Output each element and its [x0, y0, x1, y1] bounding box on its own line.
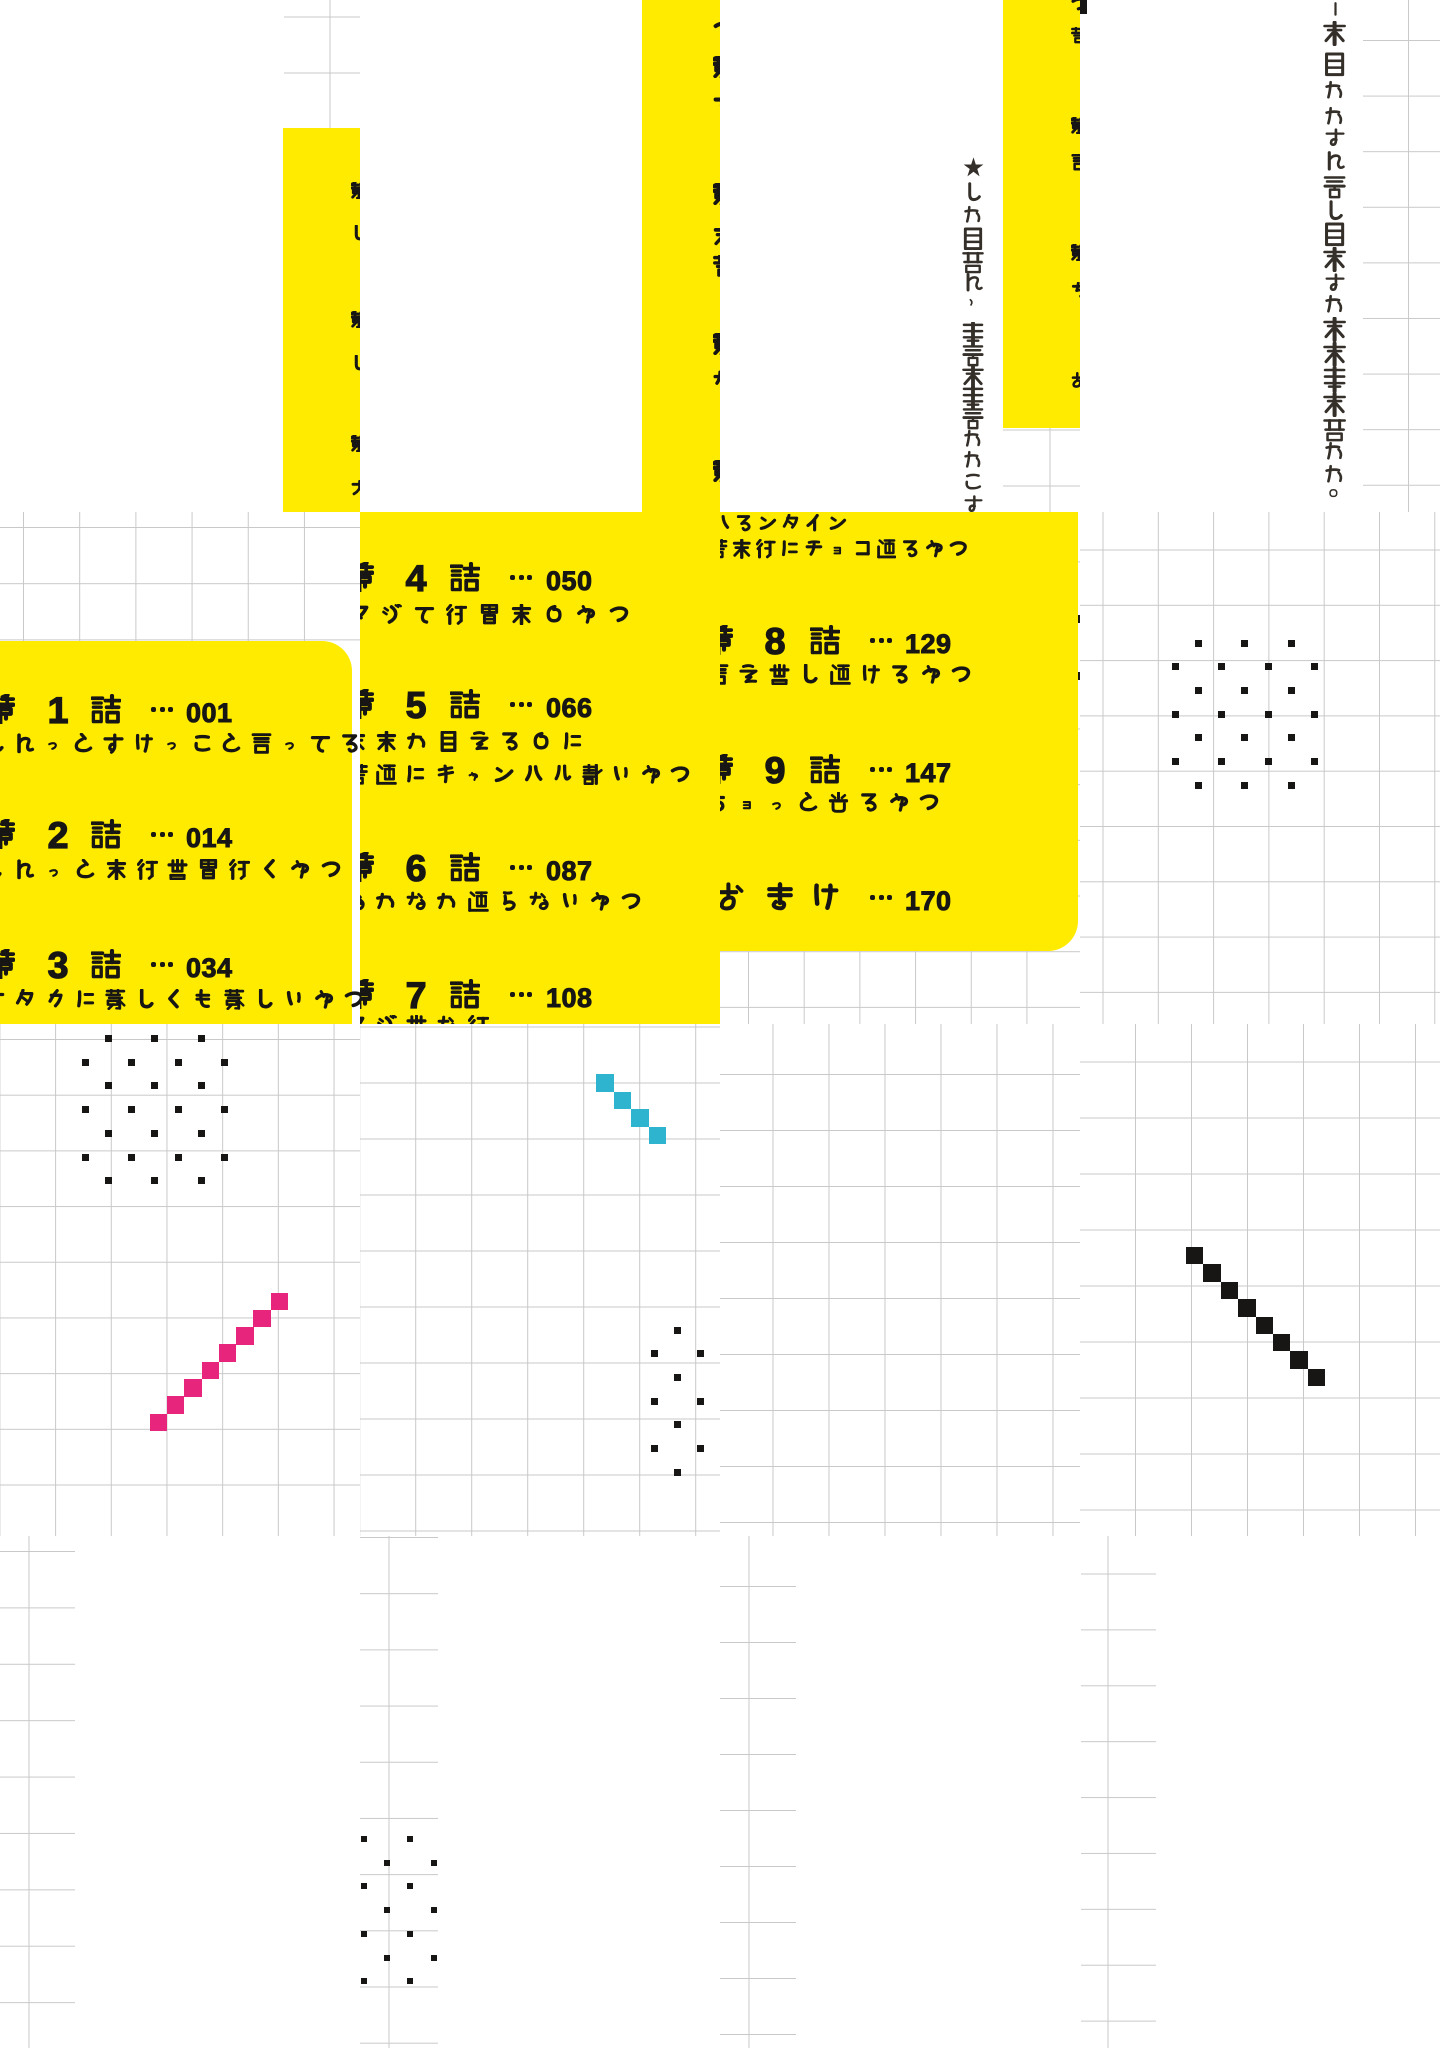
svg-text:129: 129	[905, 629, 952, 659]
svg-text:014: 014	[186, 823, 233, 853]
svg-text:034: 034	[186, 953, 233, 983]
svg-text:147: 147	[905, 758, 952, 788]
svg-text:001: 001	[186, 698, 233, 728]
svg-text:050: 050	[546, 566, 593, 596]
svg-text:8: 8	[765, 620, 786, 662]
svg-text:1: 1	[47, 689, 68, 731]
svg-text:108: 108	[546, 983, 593, 1013]
svg-text:5: 5	[406, 684, 427, 726]
svg-text:066: 066	[546, 693, 593, 723]
svg-text:2: 2	[47, 814, 68, 856]
svg-text:7: 7	[406, 974, 427, 1016]
svg-text:6: 6	[406, 847, 427, 889]
svg-text:9: 9	[765, 749, 786, 791]
svg-text:170: 170	[905, 886, 952, 916]
svg-text:4: 4	[406, 557, 427, 599]
svg-text:087: 087	[546, 856, 593, 886]
svg-text:3: 3	[47, 944, 68, 986]
